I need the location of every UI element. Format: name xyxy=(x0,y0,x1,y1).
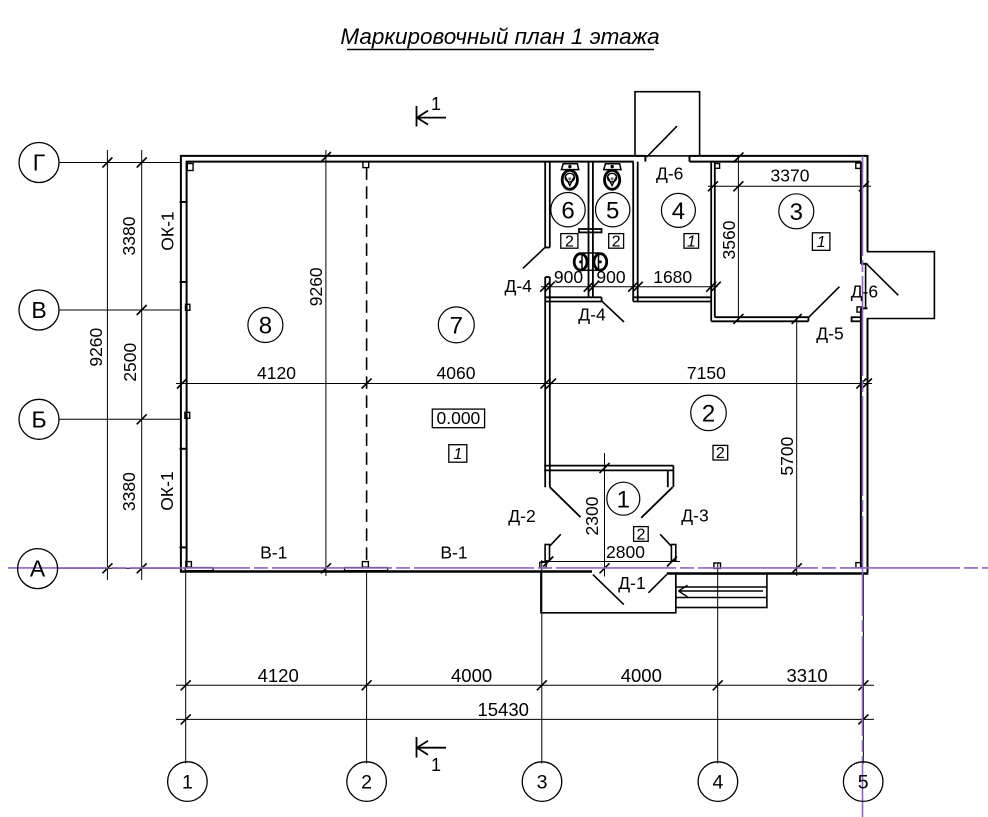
svg-text:1680: 1680 xyxy=(653,267,692,287)
svg-text:5700: 5700 xyxy=(777,436,797,475)
svg-text:Д-6: Д-6 xyxy=(851,281,878,301)
svg-text:А: А xyxy=(30,556,46,582)
svg-text:2: 2 xyxy=(612,233,621,250)
svg-text:1: 1 xyxy=(453,446,462,463)
svg-text:2300: 2300 xyxy=(582,496,602,535)
svg-text:3380: 3380 xyxy=(119,216,139,255)
svg-text:4: 4 xyxy=(712,772,723,794)
svg-text:4060: 4060 xyxy=(437,363,476,383)
svg-text:1: 1 xyxy=(687,233,696,250)
svg-text:3560: 3560 xyxy=(719,220,739,259)
svg-text:4: 4 xyxy=(672,198,685,225)
svg-text:4000: 4000 xyxy=(621,665,662,686)
svg-text:6: 6 xyxy=(561,197,574,224)
svg-text:В: В xyxy=(31,297,46,323)
svg-text:Д-3: Д-3 xyxy=(681,506,708,526)
svg-text:Маркировочный план 1 этажа: Маркировочный план 1 этажа xyxy=(340,24,659,49)
svg-text:7: 7 xyxy=(450,313,463,340)
svg-text:1: 1 xyxy=(431,755,441,775)
svg-text:3380: 3380 xyxy=(119,472,139,511)
svg-text:900: 900 xyxy=(554,267,583,287)
svg-text:2: 2 xyxy=(636,527,645,544)
svg-text:Д-6: Д-6 xyxy=(656,163,683,183)
svg-text:Д-4: Д-4 xyxy=(504,276,532,296)
svg-text:2: 2 xyxy=(565,233,574,250)
svg-text:9260: 9260 xyxy=(306,267,326,306)
svg-text:Д-5: Д-5 xyxy=(816,324,843,344)
svg-text:5: 5 xyxy=(858,772,869,794)
svg-text:0.000: 0.000 xyxy=(437,408,481,428)
svg-text:1: 1 xyxy=(182,772,193,794)
svg-text:1: 1 xyxy=(617,486,630,513)
svg-text:5: 5 xyxy=(606,197,619,224)
svg-text:1: 1 xyxy=(817,234,826,251)
svg-text:3370: 3370 xyxy=(771,166,810,186)
svg-text:Г: Г xyxy=(33,150,46,176)
svg-text:900: 900 xyxy=(596,267,625,287)
svg-text:3310: 3310 xyxy=(787,665,828,686)
svg-text:4120: 4120 xyxy=(258,665,299,686)
svg-text:9260: 9260 xyxy=(86,327,106,366)
svg-text:В-1: В-1 xyxy=(440,543,467,563)
svg-text:4000: 4000 xyxy=(451,665,492,686)
svg-text:ОК-1: ОК-1 xyxy=(157,471,177,510)
svg-text:3: 3 xyxy=(790,199,803,226)
svg-text:15430: 15430 xyxy=(477,699,528,720)
svg-text:Д-1: Д-1 xyxy=(618,573,645,593)
svg-text:Д-2: Д-2 xyxy=(508,506,535,526)
svg-text:1: 1 xyxy=(431,94,441,114)
svg-text:4120: 4120 xyxy=(257,363,296,383)
svg-text:Д-4: Д-4 xyxy=(578,305,606,325)
svg-text:8: 8 xyxy=(259,313,272,340)
svg-text:В-1: В-1 xyxy=(260,543,287,563)
svg-text:Б: Б xyxy=(31,407,46,433)
svg-text:2: 2 xyxy=(361,772,372,794)
svg-text:2: 2 xyxy=(702,401,715,428)
svg-text:2500: 2500 xyxy=(120,342,140,381)
svg-text:7150: 7150 xyxy=(687,363,726,383)
svg-text:ОК-1: ОК-1 xyxy=(157,211,177,250)
svg-text:3: 3 xyxy=(537,772,548,794)
svg-text:2800: 2800 xyxy=(606,542,645,562)
svg-text:2: 2 xyxy=(716,445,725,462)
